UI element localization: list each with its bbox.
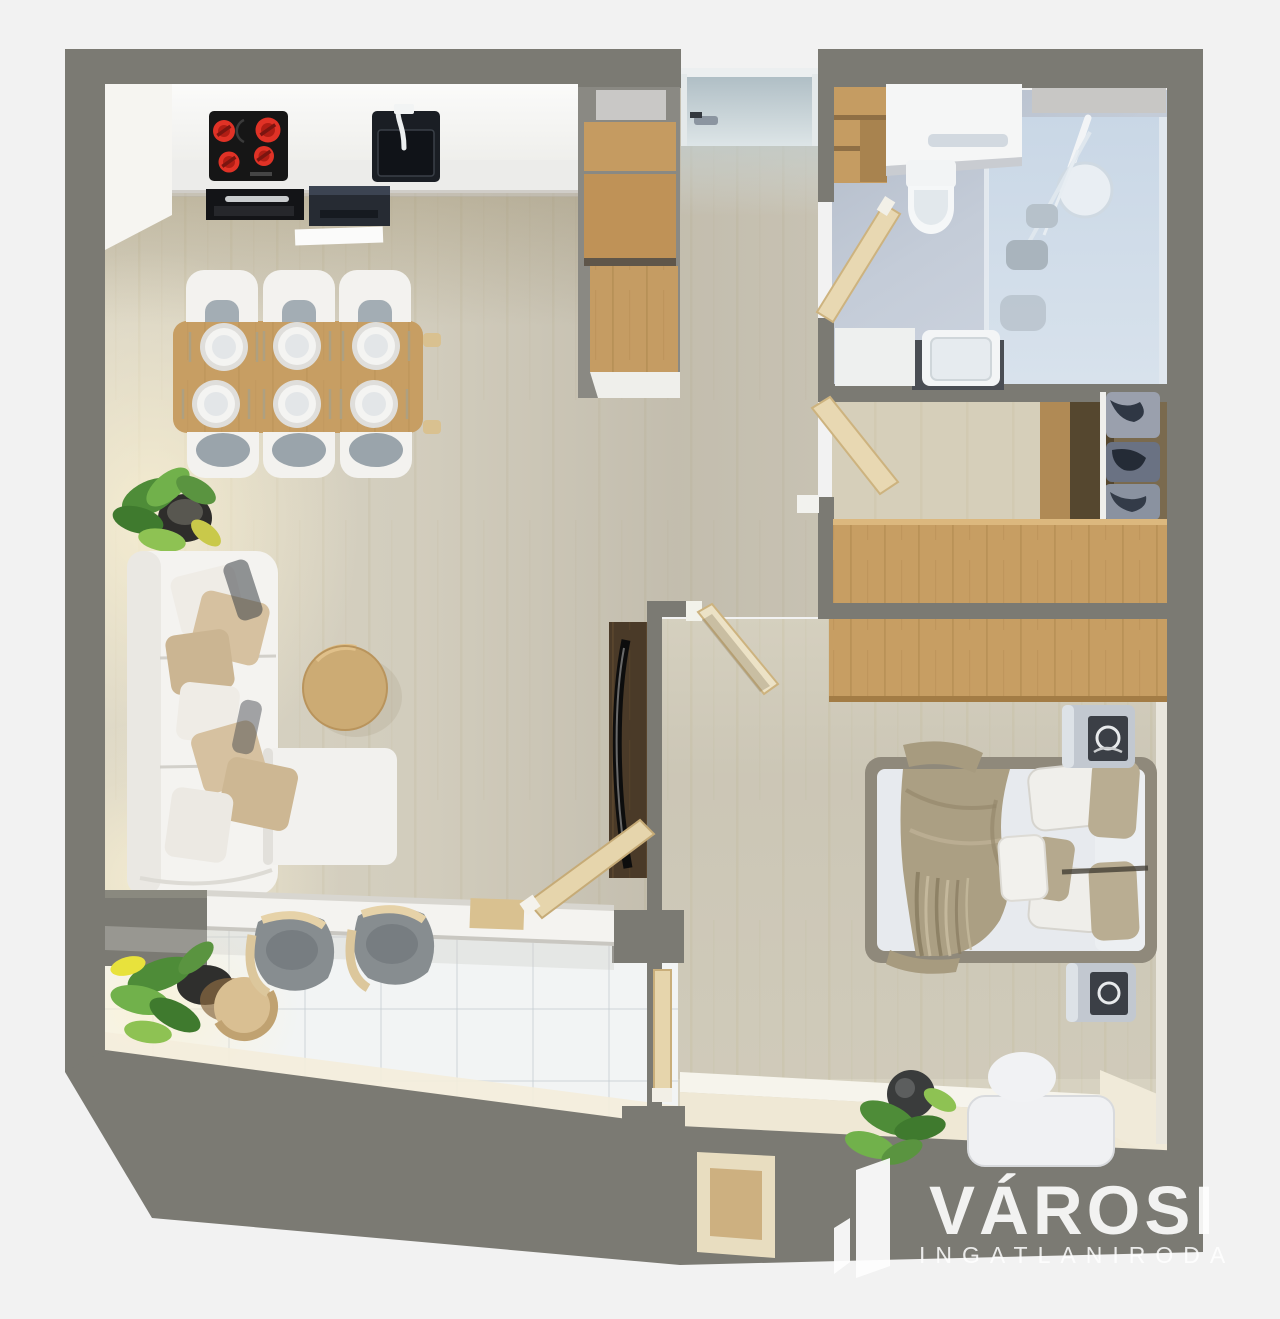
svg-text:INGATLANIRODA: INGATLANIRODA xyxy=(919,1242,1235,1268)
svg-text:VÁROSI: VÁROSI xyxy=(929,1172,1218,1249)
